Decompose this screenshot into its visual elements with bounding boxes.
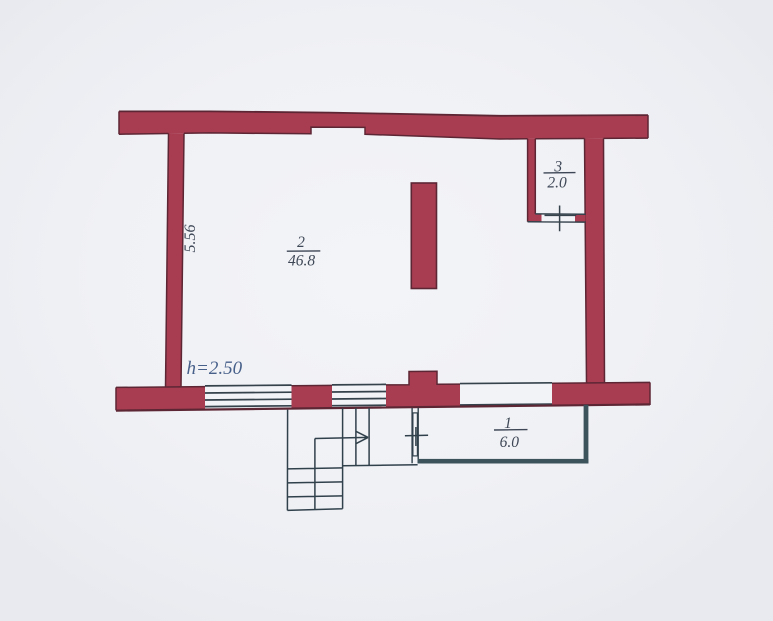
svg-text:2: 2 <box>297 234 305 251</box>
svg-text:46.8: 46.8 <box>288 252 315 269</box>
svg-text:h=2.50: h=2.50 <box>187 358 243 379</box>
svg-text:6.0: 6.0 <box>500 434 520 451</box>
svg-text:5.56: 5.56 <box>182 225 199 253</box>
svg-text:2.0: 2.0 <box>547 175 567 192</box>
